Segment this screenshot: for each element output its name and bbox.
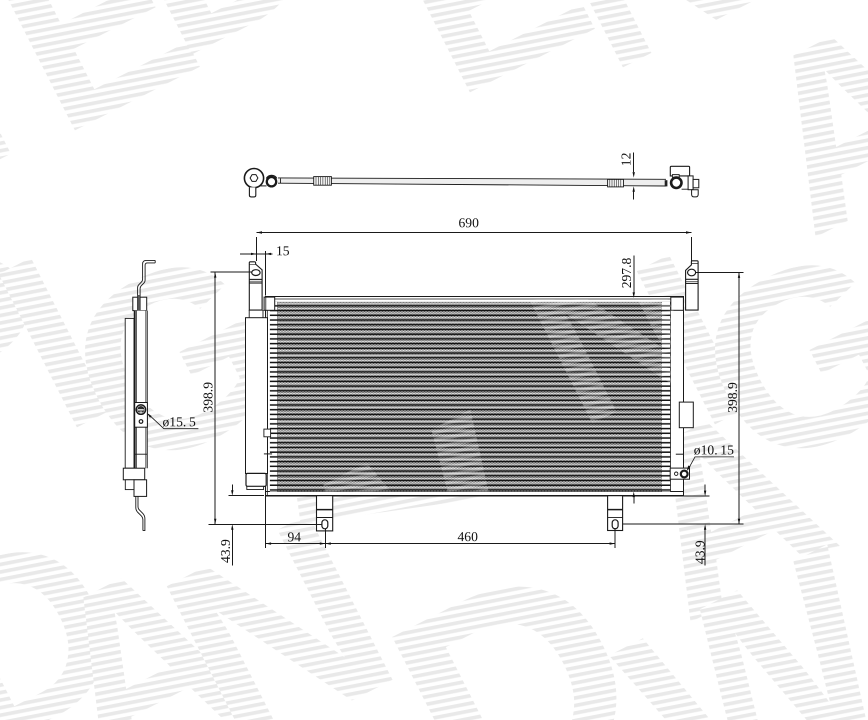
svg-text:297.8: 297.8 bbox=[619, 258, 634, 289]
svg-text:460: 460 bbox=[457, 529, 478, 544]
svg-text:ø15. 5: ø15. 5 bbox=[162, 414, 196, 429]
svg-text:12: 12 bbox=[619, 152, 634, 166]
svg-text:94: 94 bbox=[287, 529, 301, 544]
svg-text:15: 15 bbox=[276, 243, 290, 258]
svg-text:398.9: 398.9 bbox=[725, 382, 740, 413]
svg-text:690: 690 bbox=[458, 215, 479, 230]
svg-text:ø10. 15: ø10. 15 bbox=[694, 442, 734, 457]
svg-text:43.9: 43.9 bbox=[693, 540, 708, 564]
svg-text:43.9: 43.9 bbox=[218, 539, 233, 563]
svg-text:398.9: 398.9 bbox=[200, 382, 215, 413]
